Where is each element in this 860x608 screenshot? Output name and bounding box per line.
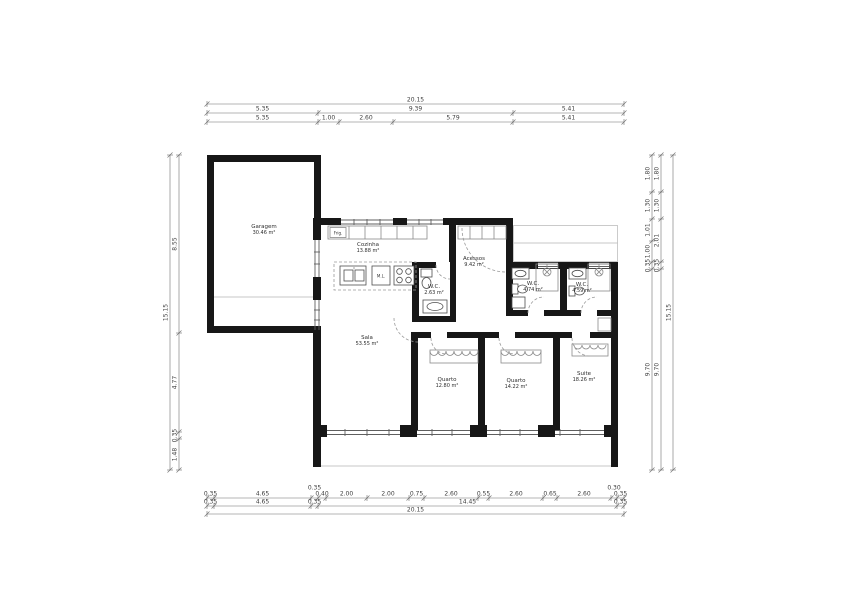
dim-label: 9.70	[645, 363, 652, 377]
dim-label: 5.41	[562, 106, 576, 113]
dim-label: 0.35	[614, 491, 628, 498]
dim-right-col3: 15.15	[666, 153, 677, 473]
dim-label: 9.70	[654, 363, 661, 377]
dim-label: 5.41	[562, 115, 576, 122]
dim-label: 0.35	[654, 259, 661, 273]
dim-label: 4.65	[256, 491, 270, 498]
dim-label: 2.60	[444, 491, 458, 498]
room-area-wc3: 4.59 m²	[572, 288, 592, 294]
toilet	[421, 269, 432, 277]
bedroom1-door-arc	[431, 338, 447, 354]
dim-label: 2.60	[359, 115, 373, 122]
pillar	[604, 425, 618, 437]
dim-label: 1.80	[654, 167, 661, 181]
pillar	[538, 425, 555, 437]
room-area-quarto2: 14.22 m²	[505, 384, 528, 390]
dim-top-row3: 5.351.002.605.795.41	[205, 115, 627, 126]
garage-walls	[207, 155, 321, 333]
dim-label: 4.65	[256, 499, 270, 506]
dim-label: 0.35	[172, 429, 179, 443]
washing-machine: M.L.	[372, 266, 390, 285]
north-window-2	[407, 219, 443, 225]
pillar	[313, 425, 327, 437]
dim-bottom-row3: 20.15	[205, 507, 627, 518]
dim-label: 5.35	[256, 106, 270, 113]
dim-label: 0.35	[308, 499, 322, 506]
wardrobes	[430, 318, 611, 363]
dim-label: 4.77	[172, 376, 179, 390]
dim-label: 5.35	[256, 115, 270, 122]
room-area-acessos: 9.42 m²	[464, 262, 484, 268]
dim-label: 2.60	[577, 491, 591, 498]
dim-label: 2.00	[340, 491, 354, 498]
dim-label: 5.79	[446, 115, 460, 122]
dim-label: 20.15	[407, 97, 424, 104]
bath-b-door-arc	[581, 297, 597, 313]
dim-label: 1.80	[645, 167, 652, 181]
dim-label: 1.30	[645, 199, 652, 213]
dim-left-inner: 8.554.770.351.48	[172, 153, 183, 473]
dim-label: 0.35	[204, 499, 218, 506]
dim-label: 1.01	[645, 223, 652, 237]
floor-plan-drawing: Frig. M.L.	[0, 0, 860, 608]
dim-label: 0.40	[315, 491, 329, 498]
washer-label: M.L.	[377, 274, 385, 279]
kitchen-counter	[328, 226, 427, 239]
room-area-garagem: 30.46 m²	[253, 230, 276, 236]
dim-label: 0.65	[543, 491, 557, 498]
dim-label: 2.01	[654, 234, 661, 248]
fridge-label: Frig.	[334, 231, 343, 236]
dim-label: 1.00	[322, 115, 336, 122]
dim-label: 8.55	[172, 237, 179, 251]
dim-label: 15.15	[163, 304, 170, 321]
north-window-1	[341, 219, 393, 225]
dim-label: 1.30	[654, 199, 661, 213]
room-area-sala: 53.55 m²	[356, 341, 379, 347]
dim-label: 0.35	[614, 499, 628, 506]
west-window-2	[314, 300, 320, 330]
dim-label: 14.45	[459, 499, 476, 506]
dim-label: 15.15	[666, 304, 673, 321]
dim-right-col2: 1.801.302.010.359.70	[654, 153, 665, 473]
dim-label: 0.75	[410, 491, 424, 498]
kitchen-sink	[340, 266, 366, 285]
room-area-suite: 18.26 m²	[573, 377, 596, 383]
dim-label: 0.35	[204, 491, 218, 498]
dim-label: 2.60	[509, 491, 523, 498]
bath-a-door-arc	[528, 297, 544, 313]
dim-label: 2.00	[381, 491, 395, 498]
wc1-door-arc	[436, 265, 450, 279]
room-area-wc1: 2.63 m²	[424, 290, 444, 296]
cabinet	[512, 297, 525, 308]
room-area-quarto1: 12.80 m²	[436, 383, 459, 389]
dim-left-outer: 15.15	[163, 153, 174, 473]
room-area-cozinha: 13.88 m²	[357, 248, 380, 254]
dim-label: 0.35	[645, 259, 652, 273]
dim-label: 1.00	[645, 245, 652, 259]
dim-label: 9.39	[409, 106, 423, 113]
dim-label: 20.15	[407, 507, 424, 514]
stove	[394, 266, 414, 285]
dim-label: 0.55	[477, 491, 491, 498]
floor-plan-canvas: Frig. M.L.	[0, 0, 860, 608]
west-window-1	[314, 240, 320, 277]
dim-label: 1.48	[172, 448, 179, 462]
roof-overhang	[514, 226, 618, 262]
south-glazing	[313, 425, 618, 466]
interior-walls	[411, 225, 618, 430]
room-area-wc2: 4.74 m²	[523, 287, 543, 293]
